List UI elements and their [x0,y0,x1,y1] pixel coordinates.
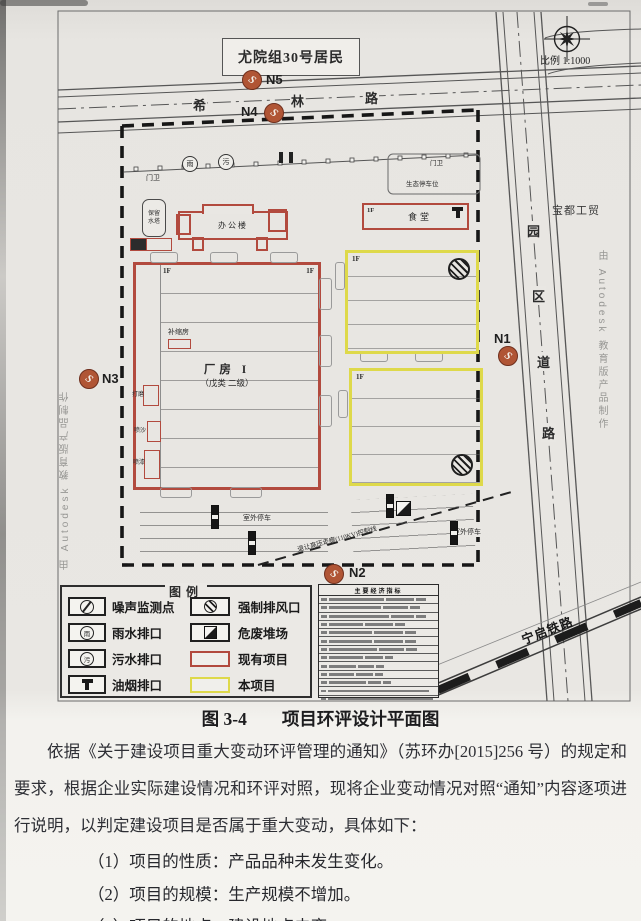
bollard [450,521,458,545]
dock-tab [210,252,238,263]
road-char: 路 [541,423,556,442]
scale-label: 比例 1:1000 [540,52,590,67]
road-char: 林 [290,91,305,110]
rain-outlet-symbol: 雨 [182,156,198,172]
fume-outlet-icon [68,675,106,694]
dock-tab [319,335,332,367]
marker-label-n5: N5 [266,72,283,87]
marker-label-n3: N3 [102,371,119,386]
fume-outlet-icon [452,207,463,218]
eco-parking-label: 生态停车位 [406,178,439,188]
rain-outlet-icon: 雨 [68,623,106,642]
small-annex-row [130,238,172,251]
legend-label: 危废堆场 [238,623,288,642]
gate-post [289,152,293,163]
marker-label-n1: N1 [494,331,511,346]
indicator-row [319,613,438,621]
grinding-room-label: 打磨 [132,389,144,398]
residents-label: 尤院组30号居民 [238,47,344,67]
scan-edge-shadow [0,0,6,921]
gate-label-east: 门卫 [430,157,443,167]
sewage-outlet-icon: 污 [68,649,106,668]
body-list: （1）项目的性质：产品品种未发生变化。 （2）项目的规模：生产规模不增加。 （3… [88,846,628,921]
indicator-row [319,646,438,654]
office-roof-bump [202,204,254,214]
floor-label: 1F [306,267,314,275]
forced-vent-icon [451,454,473,476]
noise-monitor-icon [68,597,106,616]
office-stub [256,237,268,251]
marker-label-n2: N2 [349,565,366,580]
list-item: （2）项目的规模：生产规模不增加。 [88,879,628,912]
office-label: 办公楼 [218,220,248,231]
workshop-class: （戊类 二级） [200,377,253,389]
dock-tab [270,252,298,263]
dock-tab [319,278,332,310]
body-paragraph-block: 依据《关于建设项目重大变动环评管理的通知》（苏环办[2015]256 号）的规定… [14,733,627,844]
gate-post [279,152,283,163]
dock-tab [319,395,332,427]
indicator-row [319,662,438,670]
road-char: 路 [364,88,379,107]
noise-point-n4: S [264,103,284,123]
forced-vent-icon [448,258,470,280]
paint-room-label: 喷漆 [133,457,145,466]
dock-tab [338,390,348,418]
floor-label: 1F [356,373,364,381]
sewage-char: 污 [223,157,230,167]
sandblast-room-label: 喷沙 [134,425,146,434]
list-item: （3）项目的地点：建设地点未变。 [88,911,628,921]
canteen-label: 食堂 [408,210,432,223]
scan-smudge [588,2,608,6]
dock-tab [160,487,192,498]
office-stub [192,237,204,251]
sewage-outlet-symbol: 污 [218,154,234,170]
indicator-row [319,637,438,645]
canteen-building: 1F 食堂 [362,203,469,230]
noise-point-n5: S [242,70,262,90]
dock-tab [150,252,178,263]
dock-tab [335,262,345,290]
dock-tab [230,487,262,498]
residents-box: 尤院组30号居民 [222,38,360,76]
noise-point-n3: S [79,369,99,389]
bollard [248,531,256,555]
hazardous-waste-icon [190,623,230,642]
legend-label: 强制排风口 [238,597,301,616]
office-end-cap [268,209,287,232]
indicator-row [319,671,438,679]
fence-line [124,152,478,172]
legend-label: 噪声监测点 [112,597,175,616]
floor-label: 1F [352,255,360,263]
indicator-row [319,654,438,662]
bollard [386,494,394,518]
floor-label: 1F [163,267,171,275]
workshop-title: 厂房 I [204,361,250,377]
office-end-cap [176,214,191,235]
rain-char: 雨 [187,159,194,169]
legend-label: 现有项目 [238,649,288,668]
indicator-row [319,629,438,637]
indicator-note-row [319,696,438,703]
scan-smudge [0,0,88,6]
water-tower-label: 保留水塔 [148,210,161,226]
new-building-b: 1F [349,368,483,486]
document-page: 尤院组30号居民 S N5 N4 S 希 林 路 园 区 道 路 宝都工贸 比例… [0,0,641,921]
autodesk-watermark-left: 由 Autodesk 教育版产品制作 [58,240,73,570]
marker-label-n4: N4 [241,104,258,119]
road-char: 道 [536,352,551,371]
noise-point-n1: S [498,346,518,366]
paint-room [144,450,160,479]
existing-project-swatch [190,651,230,667]
sewage-char: 污 [80,652,94,666]
legend: 图例 雨 污 噪声监测点 雨水排口 污水排口 油烟排口 强制排风口 危废堆场 现… [60,585,312,698]
outdoor-parking-label: 室外停车 [242,513,272,523]
indicator-table: 主要经济指标 [318,584,439,698]
indicator-row [319,679,438,687]
indicator-row [319,604,438,612]
indicator-note-row [319,687,438,695]
road-char: 区 [531,286,546,305]
indicator-row [319,596,438,604]
noise-point-n2: S [324,564,344,584]
road-char: 希 [192,95,207,114]
road-char: 园 [526,221,541,240]
forced-vent-legend-icon [190,597,230,616]
new-project-swatch [190,677,230,693]
list-item: （1）项目的性质：产品品种未发生变化。 [88,846,628,879]
legend-label: 本项目 [238,675,276,694]
water-tower: 保留水塔 [142,199,166,237]
riser-room [168,339,191,349]
riser-room-label: 补缩房 [168,327,189,337]
sandblast-room [147,421,161,442]
hazardous-waste-area [396,501,411,516]
workshop-building: 1F 1F 补缩房 厂房 I （戊类 二级） 打磨 喷沙 喷漆 [133,262,321,490]
legend-label: 雨水排口 [112,623,162,642]
floor-label: 1F [367,207,374,214]
grinding-room [143,385,159,406]
company-label: 宝都工贸 [552,202,600,218]
xilin-road-lines [58,66,641,133]
bollard [211,505,219,529]
indicator-table-title: 主要经济指标 [319,585,438,596]
new-building-a: 1F [345,250,479,354]
autodesk-watermark-right: 由 Autodesk 教育版产品制作 [594,250,609,570]
legend-label: 油烟排口 [112,675,162,694]
figure-caption: 图 3-4 项目环评设计平面图 [0,706,641,731]
rain-char: 雨 [80,626,94,640]
gate-label-west: 门卫 [146,173,160,183]
indicator-row [319,621,438,629]
body-paragraph: 依据《关于建设项目重大变动环评管理的通知》（苏环办[2015]256 号）的规定… [14,733,627,844]
legend-label: 污水排口 [112,649,162,668]
